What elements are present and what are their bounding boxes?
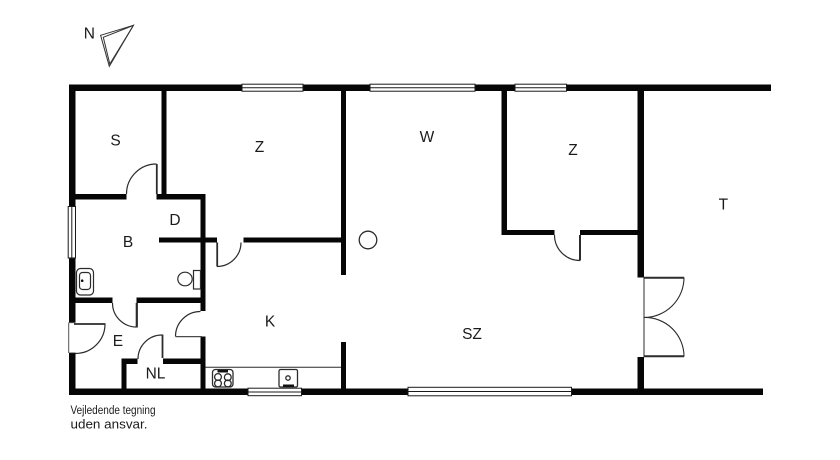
svg-text:Vejledende tegning: Vejledende tegning bbox=[71, 405, 156, 417]
svg-text:N: N bbox=[84, 26, 95, 43]
svg-text:E: E bbox=[113, 333, 123, 350]
svg-text:NL: NL bbox=[146, 365, 166, 382]
svg-text:K: K bbox=[265, 314, 276, 331]
svg-text:T: T bbox=[719, 197, 729, 214]
svg-text:B: B bbox=[123, 234, 133, 251]
svg-text:S: S bbox=[110, 132, 120, 149]
svg-text:W: W bbox=[420, 129, 435, 146]
svg-text:D: D bbox=[169, 212, 180, 229]
svg-text:Z: Z bbox=[568, 142, 577, 159]
svg-text:SZ: SZ bbox=[462, 326, 482, 343]
svg-text:Z: Z bbox=[255, 139, 264, 156]
svg-text:uden ansvar.: uden ansvar. bbox=[71, 417, 148, 432]
